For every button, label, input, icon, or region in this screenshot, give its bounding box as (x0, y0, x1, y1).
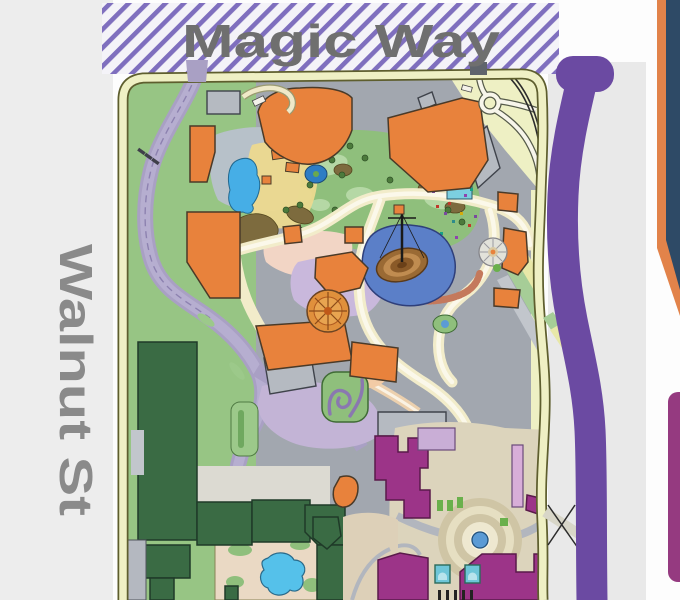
lilac-building (512, 445, 523, 507)
light-purple-building (418, 428, 455, 450)
median-green (231, 402, 258, 456)
walnut-st-label: Walnut St (50, 244, 102, 516)
magic-way-label: Magic Way (182, 15, 501, 67)
sw-gray-stub (131, 430, 144, 475)
park-map: Magic Way Walnut St (0, 0, 680, 600)
teacups-rosette (479, 238, 507, 266)
carousel (307, 290, 349, 332)
resort-map-screenshot: Magic Way Walnut St (0, 0, 680, 600)
hedge-maze (322, 372, 368, 422)
mast-flag (394, 205, 404, 214)
magenta-card (668, 392, 680, 582)
sw-gray-road (126, 540, 146, 600)
park-interior (115, 66, 567, 600)
